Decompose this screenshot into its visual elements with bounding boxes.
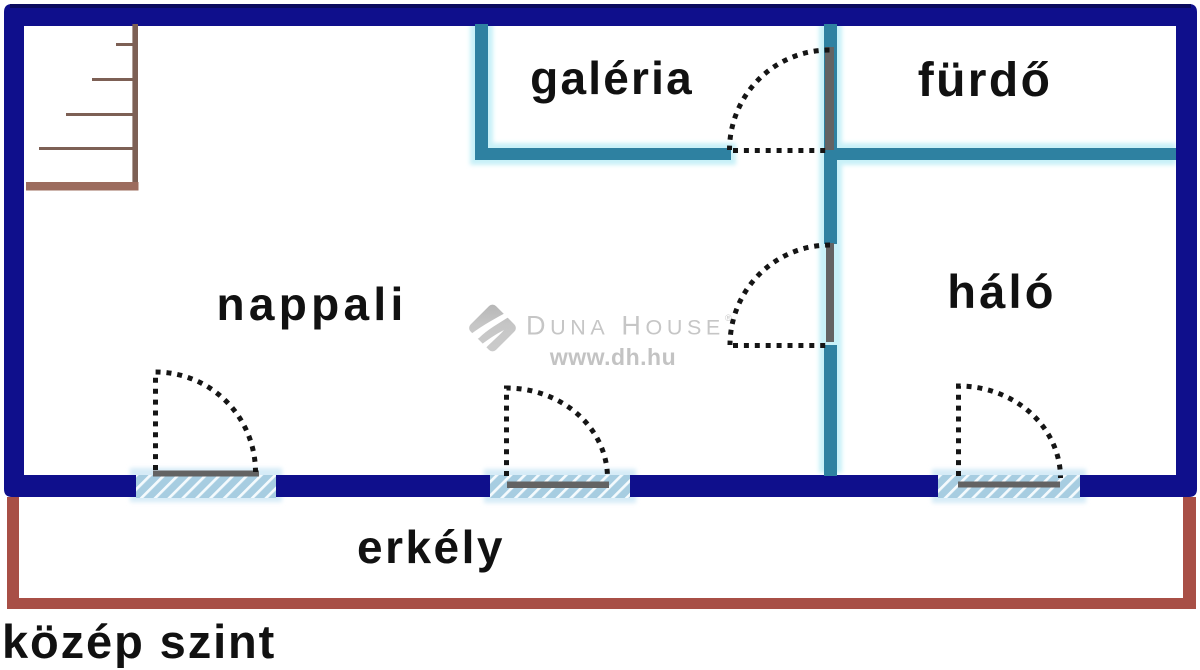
- svg-text:nappali: nappali: [216, 278, 407, 330]
- svg-text:DUNA HOUSE: DUNA HOUSE: [526, 311, 725, 341]
- svg-text:galéria: galéria: [530, 52, 694, 104]
- svg-text:fürdő: fürdő: [918, 54, 1053, 107]
- svg-text:®: ®: [725, 313, 732, 323]
- svg-text:www.dh.hu: www.dh.hu: [549, 344, 676, 370]
- svg-text:erkély: erkély: [357, 521, 505, 573]
- svg-text:háló: háló: [947, 265, 1056, 318]
- svg-text:közép szint: közép szint: [2, 615, 276, 668]
